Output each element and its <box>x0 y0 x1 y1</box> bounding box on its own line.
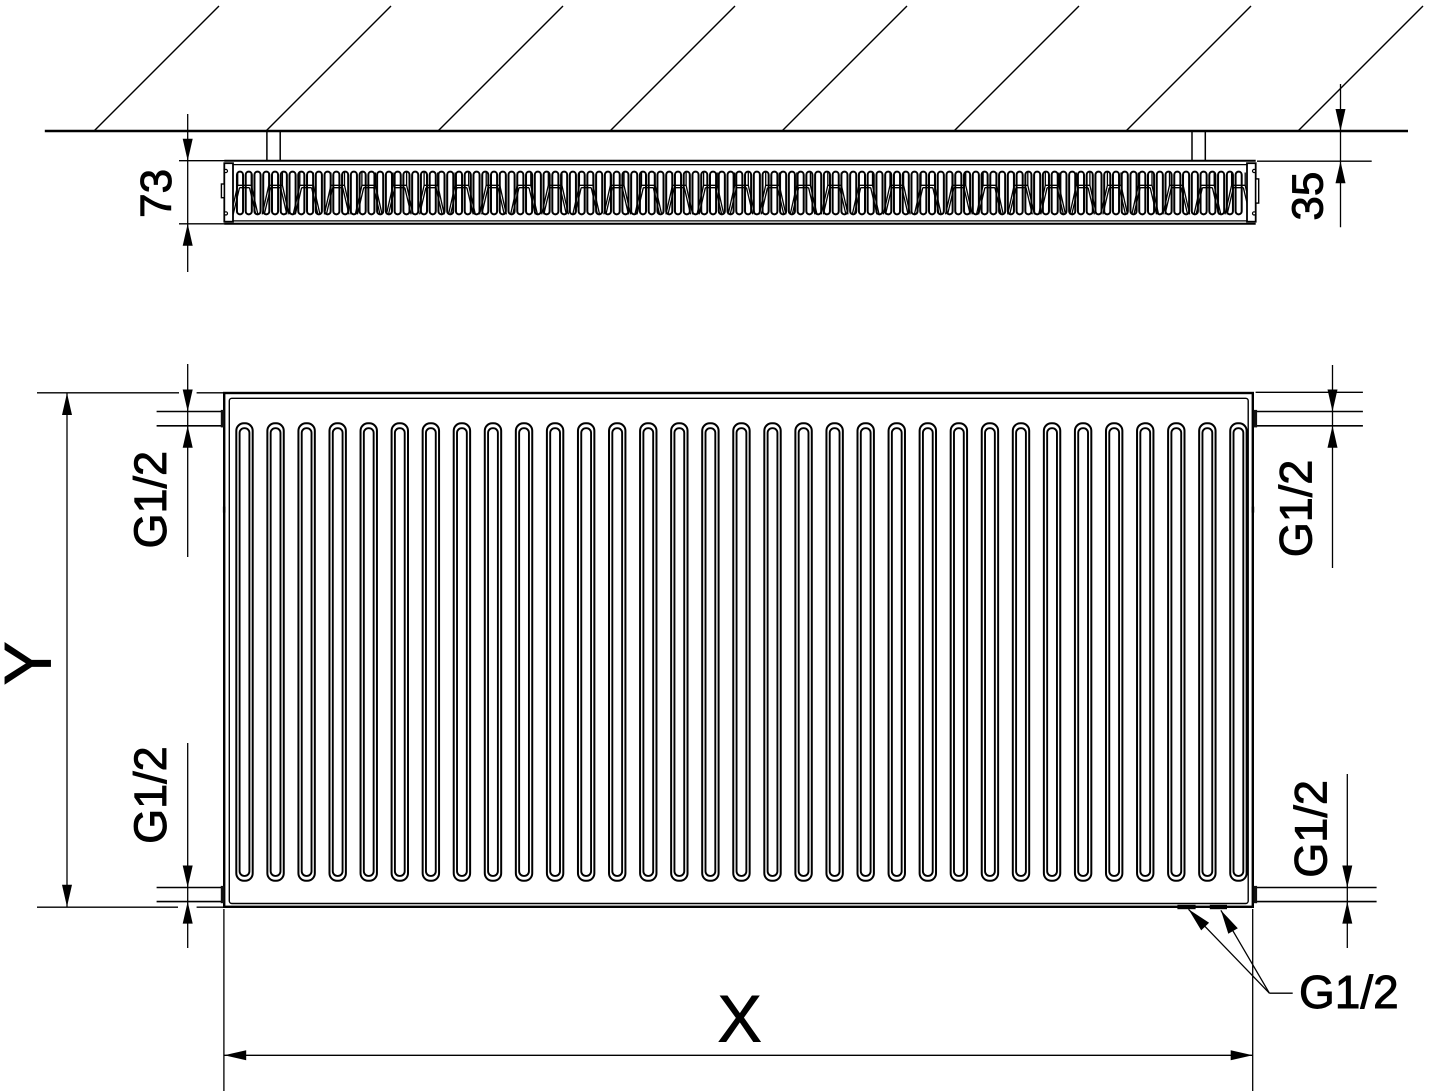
svg-text:73: 73 <box>132 169 181 218</box>
svg-text:35: 35 <box>1283 172 1332 221</box>
svg-text:G1/2: G1/2 <box>125 746 176 844</box>
svg-text:Y: Y <box>0 641 65 685</box>
svg-text:G1/2: G1/2 <box>1299 966 1399 1018</box>
svg-text:G1/2: G1/2 <box>1285 780 1336 878</box>
svg-text:G1/2: G1/2 <box>125 451 176 549</box>
svg-text:X: X <box>718 982 762 1056</box>
svg-text:G1/2: G1/2 <box>1271 460 1322 558</box>
